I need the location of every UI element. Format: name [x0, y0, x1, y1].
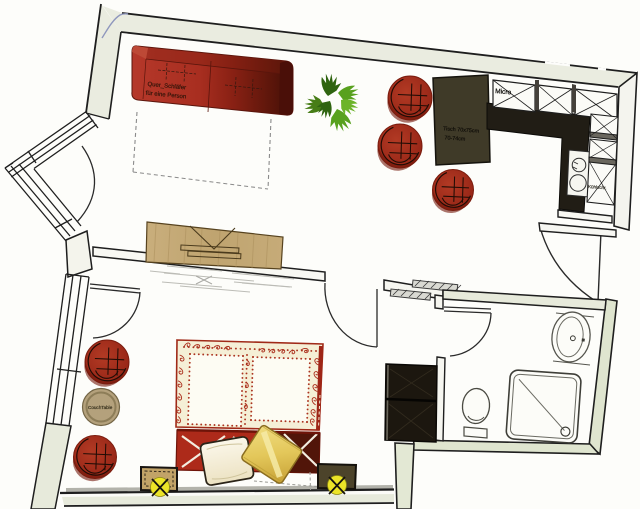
svg-text:CouchTable: CouchTable — [88, 405, 113, 410]
svg-text:Micro: Micro — [495, 88, 512, 96]
